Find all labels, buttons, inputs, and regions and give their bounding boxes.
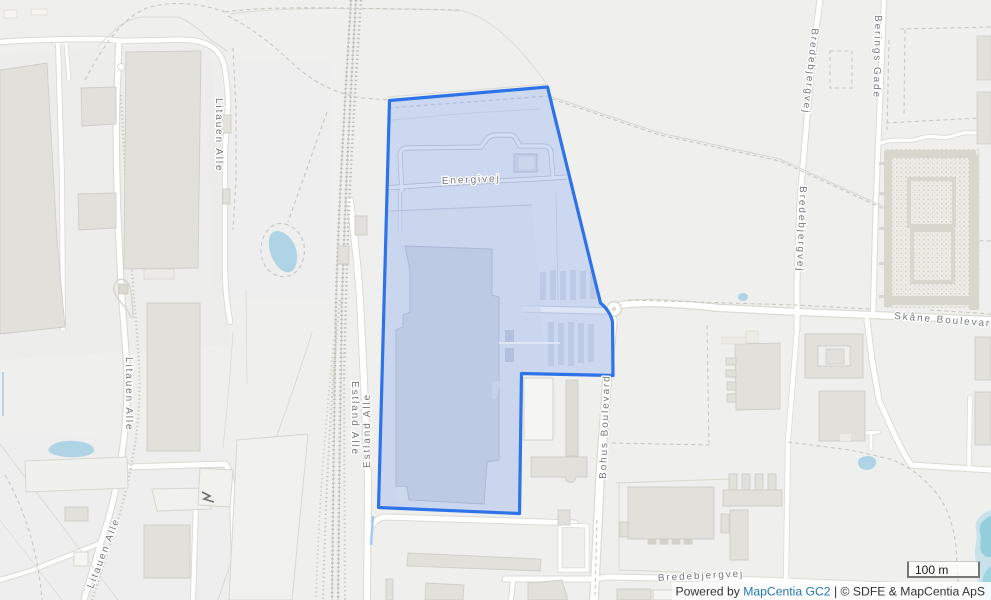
svg-text:Litauen Alle: Litauen Alle [123,357,134,432]
svg-text:Litauen Alle: Litauen Alle [213,98,224,173]
svg-text:Powered by MapCentia GC2 | © S: Powered by MapCentia GC2 | © SDFE & MapC… [675,585,985,599]
svg-text:Estland Alle: Estland Alle [362,393,373,468]
svg-text:Estland Alle: Estland Alle [349,381,360,456]
svg-text:100 m: 100 m [915,563,948,577]
svg-text:Berings Gade: Berings Gade [871,15,883,99]
